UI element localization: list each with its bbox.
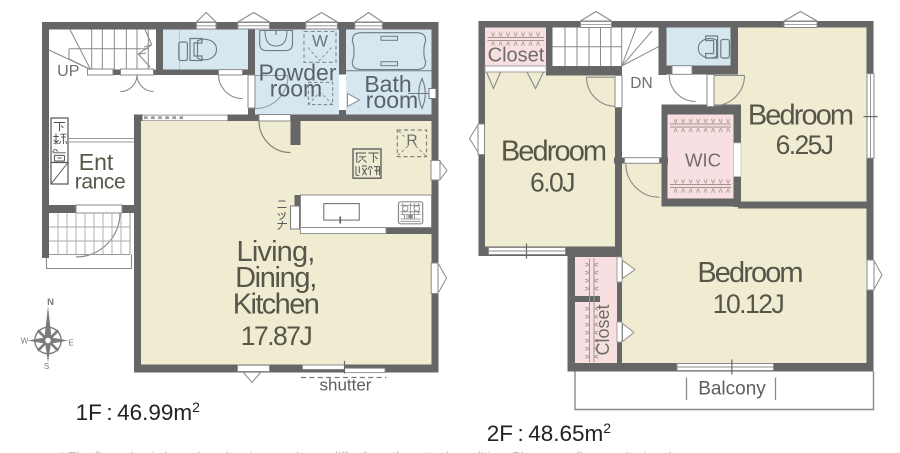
svg-text:Closet: Closet — [488, 45, 545, 67]
svg-text:S: S — [44, 362, 49, 371]
svg-text:room: room — [270, 76, 322, 102]
svg-text:room: room — [366, 87, 418, 113]
svg-text:1F : 46.99m2: 1F : 46.99m2 — [76, 399, 201, 425]
svg-text:Kitchen: Kitchen — [233, 288, 319, 320]
svg-text:2F : 48.65m2: 2F : 48.65m2 — [487, 420, 612, 446]
svg-text:rance: rance — [75, 171, 126, 194]
svg-text:Bedroom: Bedroom — [697, 257, 802, 289]
svg-text:6.25J: 6.25J — [776, 130, 833, 160]
svg-text:R: R — [406, 133, 417, 150]
svg-text:17.87J: 17.87J — [241, 321, 312, 351]
svg-text:W: W — [21, 337, 29, 346]
svg-text:W: W — [312, 32, 328, 51]
svg-text:Closet: Closet — [593, 304, 613, 355]
svg-text:Balcony: Balcony — [698, 379, 766, 400]
svg-text:UP: UP — [57, 63, 79, 80]
svg-text:DN: DN — [630, 75, 652, 92]
svg-text:* The floor plan is based on d: * The floor plan is based on drawings an… — [60, 449, 710, 453]
svg-text:N: N — [47, 297, 54, 308]
svg-text:shutter: shutter — [320, 376, 372, 395]
svg-text:E: E — [68, 339, 73, 348]
svg-text:Bedroom: Bedroom — [748, 100, 853, 132]
svg-text:6.0J: 6.0J — [530, 168, 574, 198]
svg-text:10.12J: 10.12J — [713, 289, 784, 319]
svg-text:Bedroom: Bedroom — [501, 136, 606, 168]
svg-text:WIC: WIC — [685, 150, 721, 171]
